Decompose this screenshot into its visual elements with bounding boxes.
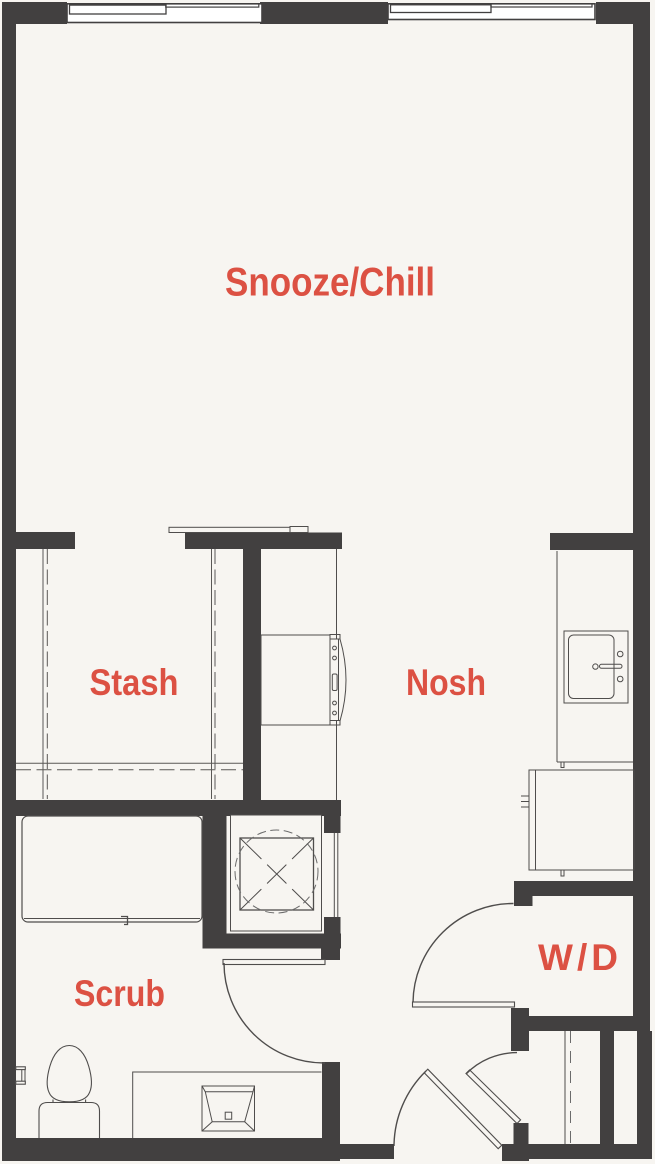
svg-text:Nosh: Nosh	[406, 662, 486, 703]
svg-text:W/D: W/D	[538, 937, 618, 978]
svg-text:Scrub: Scrub	[74, 973, 165, 1014]
svg-text:Snooze/Chill: Snooze/Chill	[225, 261, 435, 305]
svg-text:Stash: Stash	[90, 662, 179, 703]
